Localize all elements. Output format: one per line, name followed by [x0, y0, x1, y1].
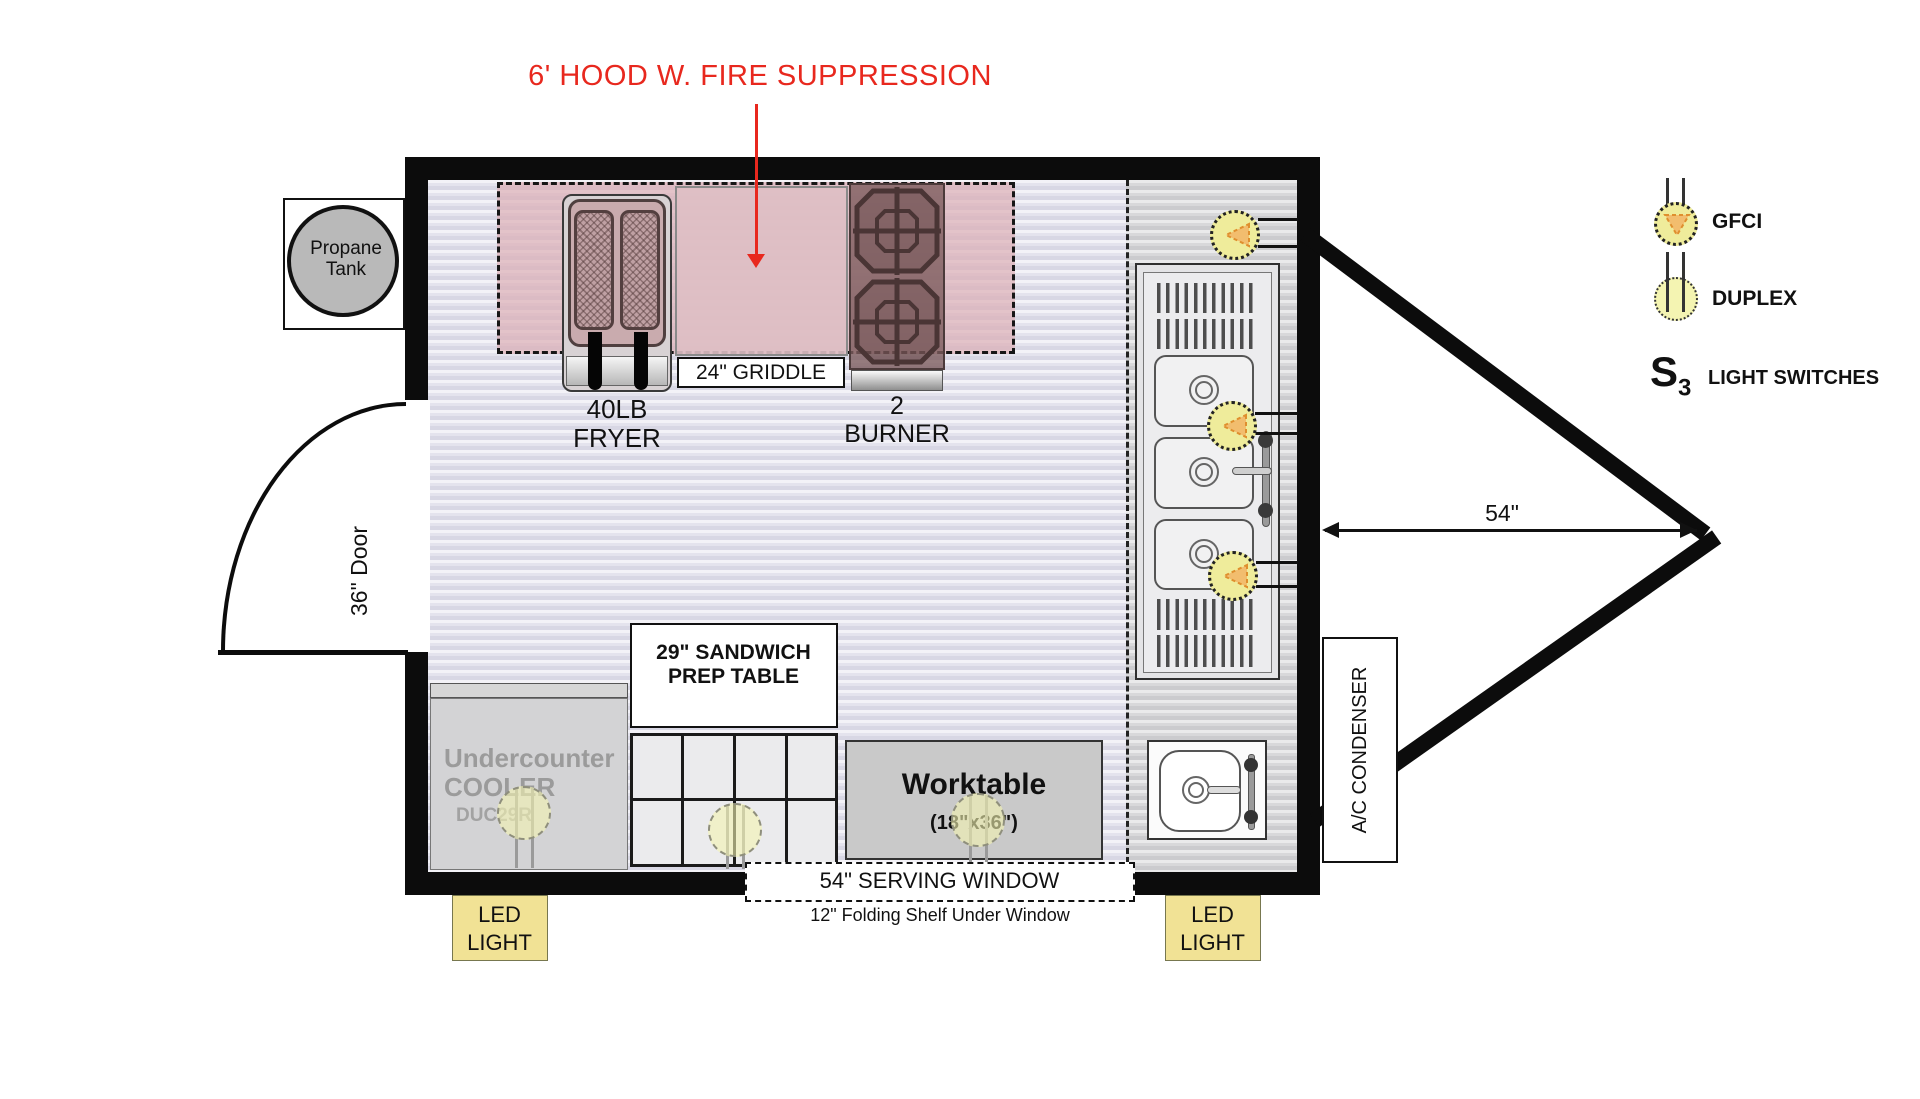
cooler-counter-edge — [430, 683, 628, 698]
legend-duplex-label: DUPLEX — [1712, 287, 1797, 311]
hand-sink-handle-bottom — [1244, 810, 1258, 824]
serving-window-label: 54" SERVING WINDOW — [747, 869, 1132, 894]
sink-drain-3b — [1195, 545, 1213, 563]
sink-drain-2b — [1195, 463, 1213, 481]
prep-table-label-line1: 29" SANDWICH — [632, 641, 835, 665]
burner-grates-icon — [851, 185, 943, 368]
legend-duplex-prong-1 — [1666, 252, 1669, 312]
hand-sink-drain-b — [1188, 782, 1204, 798]
propane-tank-label: Propane Tank — [287, 238, 405, 281]
led-label-line1: LED — [1166, 901, 1259, 929]
legend-gfci-label: GFCI — [1712, 210, 1762, 234]
folding-shelf-label: 12" Folding Shelf Under Window — [720, 905, 1160, 925]
gfci-mid-lead-1 — [1255, 412, 1298, 415]
legend-switches-label: LIGHT SWITCHES — [1708, 367, 1879, 389]
griddle-label-box: 24" GRIDDLE — [677, 357, 845, 388]
gfci-bottom-lead-1 — [1256, 561, 1298, 564]
gfci-outlet-middle-icon — [1207, 401, 1257, 451]
griddle — [675, 186, 848, 356]
fryer-handle-right — [634, 332, 648, 390]
propane-label-line2: Tank — [287, 259, 405, 280]
sink-drainboard-bottom — [1157, 599, 1254, 630]
fryer-basket-left — [574, 210, 614, 330]
sink-drainboard-top — [1157, 283, 1254, 313]
gfci-bottom-lead-2 — [1256, 585, 1298, 588]
gfci-triangle-icon — [1219, 412, 1249, 440]
cooler-duplex-outlet-icon — [497, 786, 551, 840]
gfci-top-lead-1 — [1258, 218, 1298, 221]
ac-condenser-label: A/C CONDENSER — [1349, 667, 1371, 834]
prep-table-label-line2: PREP TABLE — [632, 665, 835, 689]
cooler-label-line1: Undercounter — [444, 744, 614, 773]
undercounter-cooler: Undercounter COOLER DUC29R — [430, 698, 628, 870]
legend: GFCI DUPLEX S3 LIGHT SWITCHES — [1640, 170, 1910, 400]
fryer — [562, 194, 672, 392]
fryer-handle-left — [588, 332, 602, 390]
led-light-right: LED LIGHT — [1165, 895, 1261, 961]
burner-label-line1: 2 — [832, 392, 962, 420]
sink-faucet-spout — [1232, 467, 1272, 475]
led-light-left-label: LED LIGHT — [453, 901, 546, 956]
burner-label-line2: BURNER — [832, 420, 962, 448]
legend-duplex-icon — [1654, 277, 1698, 321]
two-burner — [849, 183, 945, 370]
sink-faucet-handle-top — [1258, 433, 1273, 448]
fryer-basket-right — [620, 210, 660, 330]
hand-sink — [1147, 740, 1267, 840]
prep-duplex-outlet-icon — [708, 803, 762, 857]
gfci-mid-lead-2 — [1255, 432, 1298, 435]
hand-sink-handle-top — [1244, 758, 1258, 772]
gfci-outlet-bottom-icon — [1208, 551, 1258, 601]
sink-faucet-handle-bottom — [1258, 503, 1273, 518]
led-label-line2: LIGHT — [453, 929, 546, 957]
sink-drain-1b — [1195, 381, 1213, 399]
door-opening — [402, 400, 430, 652]
worktable-duplex-outlet-icon — [951, 793, 1005, 847]
legend-gfci-icon — [1654, 202, 1698, 246]
prep-table-gridline-h1 — [633, 798, 835, 801]
hand-sink-spout — [1207, 786, 1241, 794]
switch-symbol-s: S — [1650, 348, 1678, 395]
hood-arrow-head-icon — [747, 254, 765, 268]
sink-drainboard-top-2 — [1157, 319, 1254, 349]
legend-gfci-prong-2 — [1682, 178, 1685, 206]
burner-label: 2 BURNER — [832, 392, 962, 448]
dimension-label: 54" — [1462, 501, 1542, 527]
led-label-line1: LED — [453, 901, 546, 929]
fryer-base — [566, 356, 668, 386]
floor-plan-canvas: 6' HOOD W. FIRE SUPPRESSION Propane Tank… — [0, 0, 1920, 1099]
gfci-triangle-down-icon — [1662, 212, 1692, 238]
switch-symbol-sub: 3 — [1678, 374, 1691, 401]
gfci-triangle-icon — [1220, 562, 1250, 590]
legend-gfci-prong-1 — [1666, 178, 1669, 206]
door-label: 36" Door — [347, 481, 383, 661]
dimension-arrow-right-icon — [1680, 522, 1697, 538]
propane-label-line1: Propane — [287, 238, 405, 259]
led-light-left: LED LIGHT — [452, 895, 548, 961]
gfci-triangle-icon — [1222, 221, 1252, 249]
fryer-label-line2: FRYER — [537, 424, 697, 453]
legend-switch-symbol: S3 — [1650, 348, 1691, 402]
dimension-line — [1325, 529, 1697, 532]
three-compartment-sink — [1135, 263, 1280, 680]
hood-arrow-line — [755, 104, 758, 256]
fryer-label: 40LB FRYER — [537, 395, 697, 453]
ac-condenser: A/C CONDENSER — [1322, 637, 1398, 863]
burner-base — [851, 370, 943, 391]
gfci-outlet-top-icon — [1210, 210, 1260, 260]
prep-table-label: 29" SANDWICH PREP TABLE — [632, 641, 835, 688]
led-light-right-label: LED LIGHT — [1166, 901, 1259, 956]
dimension-arrow-left-icon — [1322, 522, 1339, 538]
fryer-label-line1: 40LB — [537, 395, 697, 424]
serving-window: 54" SERVING WINDOW — [745, 862, 1135, 902]
sink-drainboard-bottom-2 — [1157, 635, 1254, 667]
gfci-top-lead-2 — [1258, 245, 1298, 248]
legend-duplex-prong-2 — [1682, 252, 1685, 312]
hood-title: 6' HOOD W. FIRE SUPPRESSION — [420, 60, 1100, 92]
griddle-label: 24" GRIDDLE — [696, 361, 826, 384]
prep-table-label-box: 29" SANDWICH PREP TABLE — [630, 623, 838, 728]
led-label-line2: LIGHT — [1166, 929, 1259, 957]
